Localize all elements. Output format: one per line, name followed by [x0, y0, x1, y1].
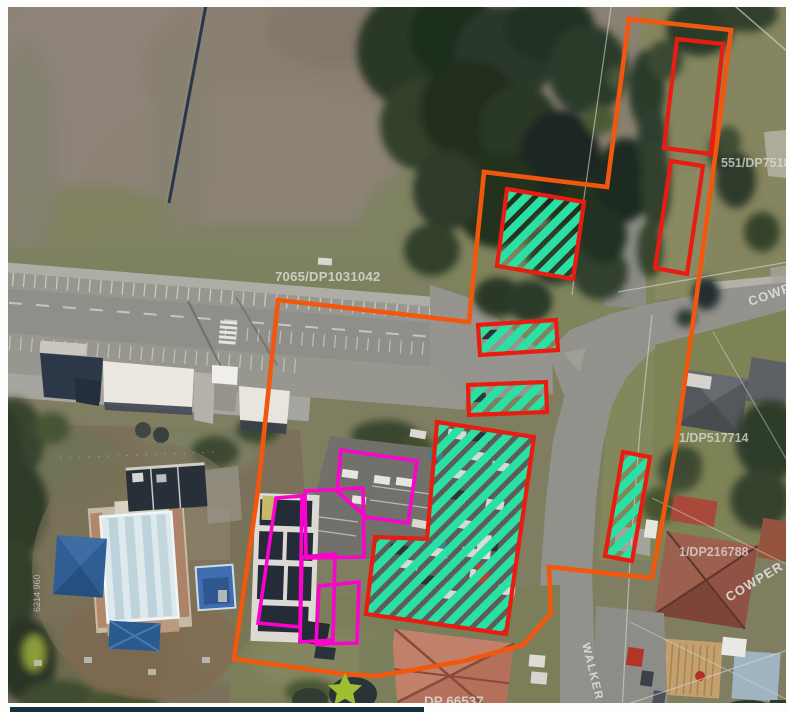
svg-text:551/DP7518: 551/DP7518: [721, 156, 788, 170]
svg-text:6214 960: 6214 960: [32, 574, 42, 612]
svg-text:7065/DP1031042: 7065/DP1031042: [275, 269, 380, 284]
svg-text:1/DP216788: 1/DP216788: [679, 545, 749, 559]
svg-text:1/DP517714: 1/DP517714: [679, 431, 749, 445]
